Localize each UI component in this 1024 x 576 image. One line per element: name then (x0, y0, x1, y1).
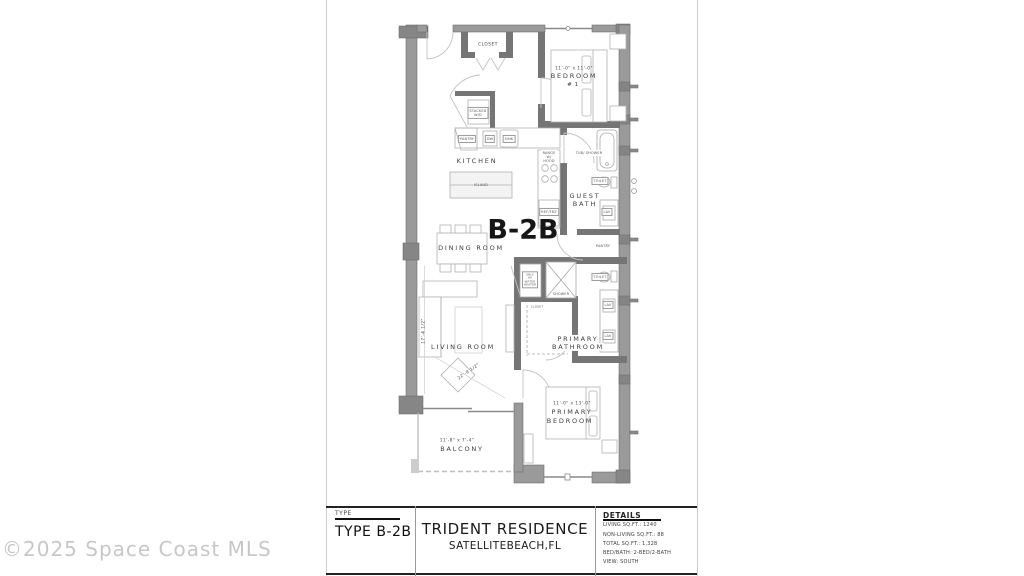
sheet-border-left (326, 0, 327, 576)
sheet-border-right (697, 0, 698, 576)
watermark: ©2025 Space Coast MLS (2, 537, 272, 561)
dresser (524, 434, 533, 463)
chair (455, 264, 466, 272)
detail-bed-bath: BED/BATH: 2-BED/2-BATH (603, 550, 671, 556)
toilet-tank (611, 177, 617, 188)
label-tub-shower: TUB/ SHOWER (575, 150, 604, 156)
detail-view: VIEW: SOUTH (603, 559, 639, 565)
burner (542, 176, 549, 183)
unit-label: B-2B (487, 215, 558, 246)
title-block-divider (415, 506, 416, 576)
label-range: RANGE W/ HOOD (541, 150, 558, 164)
label-primary-bedroom-1: PRIMARY (551, 408, 592, 416)
label-lav-guest: LAV (602, 208, 613, 216)
label-sink: SINK (503, 135, 516, 143)
label-balcony: BALCONY (440, 445, 484, 453)
utility-symbol (632, 189, 637, 194)
label-dining-room: DINING ROOM (438, 244, 504, 252)
detail-total-sqft: TOTAL SQ.FT.: 1,328 (603, 541, 657, 547)
bed1 (551, 50, 607, 122)
label-walkin-closet: CLOSET (530, 304, 544, 309)
floor-plan-drawing (388, 14, 650, 488)
label-primary-bedroom-dims: 11'-0" x 13'-0" (553, 402, 591, 407)
label-bedroom1: BEDROOM (551, 72, 598, 80)
nightstand (602, 440, 617, 453)
bifold-door (491, 58, 505, 70)
label-living-vert-dim: 17'-4 1/2" (422, 318, 427, 344)
title-block-top-rule (326, 506, 697, 508)
detail-living-sqft: LIVING SQ.FT.: 1240 (603, 522, 657, 528)
chair (440, 264, 451, 272)
label-primary-bath-2: BATHROOM (552, 343, 604, 351)
label-balcony-dims: 11'-8" x 7'-4" (440, 439, 475, 444)
sheet: CLOSET 11'-0" x 11'-0" BEDROOM # 1 STACK… (0, 0, 1024, 576)
pantry-door (557, 234, 583, 260)
sofa (423, 281, 477, 297)
label-toilet-primary: TOILET (591, 273, 608, 281)
label-bedroom1-num: # 1 (567, 82, 579, 88)
label-toilet-guest: TOILET (591, 177, 608, 185)
bifold-door (476, 58, 490, 70)
nightstand (610, 106, 626, 121)
project-name: TRIDENT RESIDENCE (422, 520, 588, 538)
toilet-tank (611, 271, 617, 282)
chair (470, 225, 481, 233)
label-pantry: PANTRY (458, 135, 476, 143)
project-location: SATELLITEBEACH,FL (449, 540, 561, 552)
title-block-divider (595, 506, 596, 576)
label-bedroom1-dims: 11'-0" x 11'-0" (555, 67, 593, 72)
burner (551, 176, 558, 183)
tv-console (506, 305, 514, 352)
label-stacked-wd: STACKED W/D (468, 107, 489, 119)
label-island: ISLAND (473, 182, 489, 188)
chair (455, 225, 466, 233)
details-underline (603, 519, 661, 521)
utility-symbol (632, 179, 637, 184)
chair (470, 264, 481, 272)
label-primary-bedroom-2: BEDROOM (547, 417, 594, 425)
pillow (582, 89, 591, 116)
type-value: TYPE B-2B (335, 524, 412, 540)
label-guest-bath-1: GUEST (570, 192, 601, 200)
burner (551, 165, 558, 172)
label-lav1: LAV (603, 301, 614, 309)
label-entry-closet: CLOSET (478, 42, 498, 47)
wd-door (450, 96, 467, 127)
chair (440, 225, 451, 233)
label-living-room: LIVING ROOM (431, 343, 495, 351)
label-primary-bath-1: PRIMARY (557, 335, 598, 343)
burner (542, 165, 549, 172)
type-underline (335, 518, 400, 520)
label-guest-bath-2: BATH (573, 200, 597, 208)
nightstand (610, 34, 626, 49)
label-kitchen: KITCHEN (457, 157, 498, 165)
label-dw: DW (485, 135, 495, 143)
label-water-heater: SHLV W/ WATER HEATER (522, 271, 538, 288)
label-lav2: LAV (603, 332, 614, 340)
type-label: TYPE (335, 510, 352, 517)
detail-nonliving-sqft: NON-LIVING SQ.FT.: 88 (603, 532, 664, 538)
title-block-bottom-rule (326, 573, 697, 575)
label-pantry-hall: PANTRY (595, 243, 611, 249)
label-shower: SHOWER (552, 291, 570, 297)
